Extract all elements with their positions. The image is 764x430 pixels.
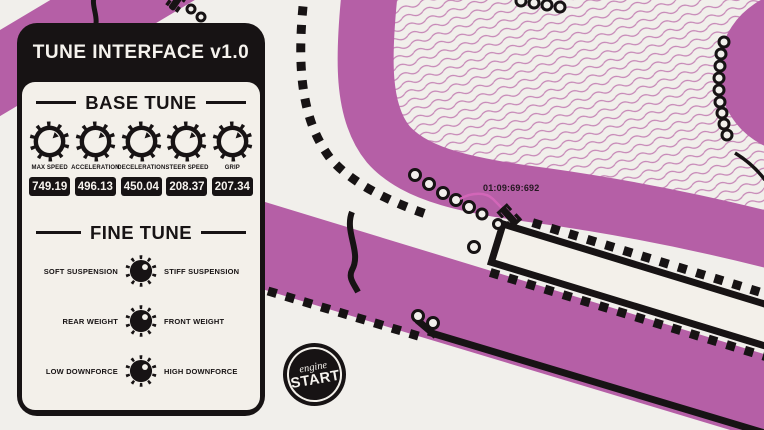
game-screen: 01:09:69:692 TUNE INTERFACE v1.0 BASE TU… <box>0 0 764 430</box>
knob-col-acceleration: ACCELERATION 496.13 <box>72 120 118 196</box>
grip-knob-icon[interactable] <box>211 120 254 163</box>
weight-row: REAR WEIGHT FRONT WEIGHT <box>30 296 252 346</box>
heading-rule <box>36 231 81 235</box>
engine-start-button-start-text: START <box>290 368 341 390</box>
panel-title: TUNE INTERFACE v1.0 <box>33 42 249 64</box>
fine-tune-title: FINE TUNE <box>81 222 201 244</box>
base-tune-title: BASE TUNE <box>76 92 205 114</box>
knob-label: STEER SPEED <box>165 165 208 171</box>
knob-label: ACCELERATION <box>71 165 119 171</box>
rear-weight-label: REAR WEIGHT <box>30 317 118 326</box>
knob-col-deceleration: DECELERATION 450.04 <box>118 120 164 196</box>
deceleration-value: 450.04 <box>121 177 162 196</box>
knob-label: GRIP <box>225 165 240 171</box>
knob-label: MAX SPEED <box>32 165 68 171</box>
knob-col-grip: GRIP 207.34 <box>210 120 255 196</box>
weight-knob-icon[interactable] <box>122 302 160 340</box>
knob-col-max-speed: MAX SPEED 749.19 <box>27 120 72 196</box>
lap-timer: 01:09:69:692 <box>483 183 539 193</box>
soft-suspension-label: SOFT SUSPENSION <box>30 267 118 276</box>
heading-rule <box>36 101 76 105</box>
acceleration-knob-icon[interactable] <box>74 120 117 163</box>
stiff-suspension-label: STIFF SUSPENSION <box>164 267 252 276</box>
high-downforce-label: HIGH DOWNFORCE <box>164 367 252 376</box>
deceleration-knob-icon[interactable] <box>120 120 163 163</box>
heading-rule <box>201 231 246 235</box>
panel-header: TUNE INTERFACE v1.0 <box>17 23 265 82</box>
acceleration-value: 496.13 <box>75 177 116 196</box>
knob-label: DECELERATION <box>117 165 165 171</box>
steer-speed-knob-icon[interactable] <box>165 120 208 163</box>
steer-speed-value: 208.37 <box>166 177 207 196</box>
max-speed-knob-icon[interactable] <box>28 120 71 163</box>
low-downforce-label: LOW DOWNFORCE <box>30 367 118 376</box>
ring-marker <box>187 5 195 13</box>
fine-tune-rows: SOFT SUSPENSION STIFF SUSPENSION REAR WE… <box>22 244 260 396</box>
suspension-knob-icon[interactable] <box>122 252 160 290</box>
downforce-row: LOW DOWNFORCE HIGH DOWNFORCE <box>30 346 252 396</box>
knob-col-steer-speed: STEER SPEED 208.37 <box>164 120 209 196</box>
front-weight-label: FRONT WEIGHT <box>164 317 252 326</box>
engine-start-button-engine-text: engine <box>299 360 328 375</box>
suspension-row: SOFT SUSPENSION STIFF SUSPENSION <box>30 246 252 296</box>
base-tune-knob-row: MAX SPEED 749.19 ACCELERATION 496.13 DEC… <box>22 114 260 196</box>
heading-rule <box>206 101 246 105</box>
ring-marker <box>197 13 205 21</box>
base-tune-heading: BASE TUNE <box>36 91 246 114</box>
max-speed-value: 749.19 <box>29 177 70 196</box>
panel-body: BASE TUNE MAX SPEED 749.19 ACCELERATION … <box>22 82 260 410</box>
fine-tune-heading: FINE TUNE <box>36 221 246 244</box>
grip-value: 207.34 <box>212 177 253 196</box>
downforce-knob-icon[interactable] <box>122 352 160 390</box>
tune-panel: TUNE INTERFACE v1.0 BASE TUNE MAX SPEED … <box>17 23 265 416</box>
